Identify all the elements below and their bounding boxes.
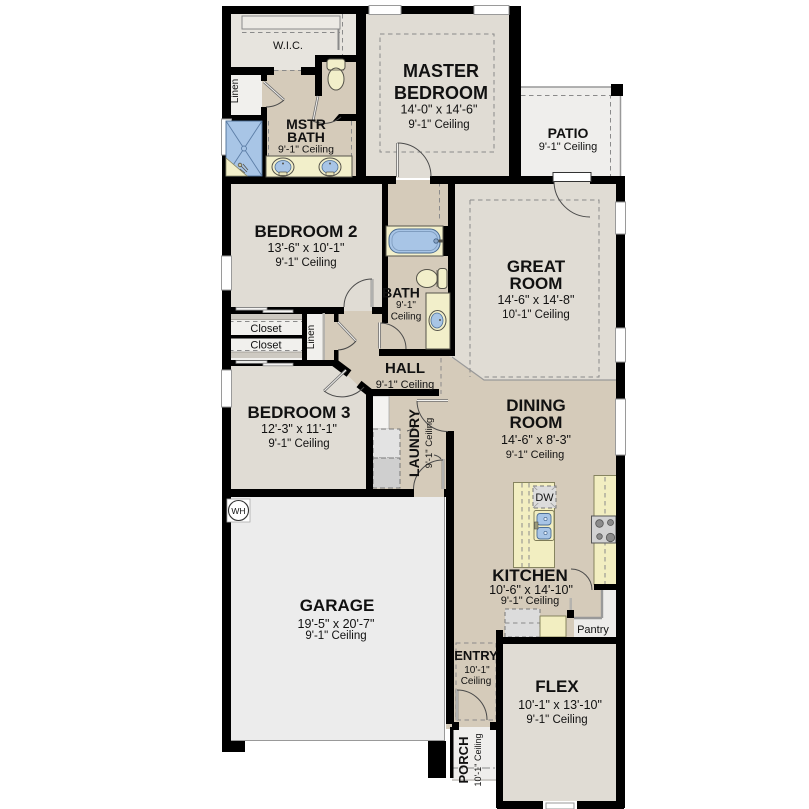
svg-text:ROOM: ROOM	[510, 413, 563, 432]
svg-text:BEDROOM: BEDROOM	[394, 83, 488, 103]
svg-text:LAUNDRY: LAUNDRY	[406, 408, 422, 477]
svg-text:10'-1": 10'-1"	[464, 665, 490, 676]
svg-text:9'-1" Ceiling: 9'-1" Ceiling	[268, 438, 329, 450]
svg-text:9'-1" Ceiling: 9'-1" Ceiling	[506, 449, 565, 461]
svg-text:ROOM: ROOM	[510, 274, 563, 293]
svg-text:Closet: Closet	[250, 323, 281, 335]
svg-text:PATIO: PATIO	[548, 125, 589, 141]
svg-text:12'-3" x 11'-1": 12'-3" x 11'-1"	[261, 422, 337, 436]
svg-text:19'-5" x 20'-7": 19'-5" x 20'-7"	[298, 617, 375, 631]
svg-text:9'-1" Ceiling: 9'-1" Ceiling	[526, 714, 587, 726]
svg-text:9'-1" Ceiling: 9'-1" Ceiling	[376, 379, 435, 391]
svg-text:9'-1" Ceiling: 9'-1" Ceiling	[408, 119, 469, 131]
svg-text:Pantry: Pantry	[577, 624, 609, 636]
svg-text:BEDROOM 2: BEDROOM 2	[255, 222, 358, 241]
svg-text:Linen: Linen	[306, 325, 317, 349]
svg-text:14'-6" x 8'-3": 14'-6" x 8'-3"	[501, 433, 571, 447]
svg-text:9'-1" Ceiling: 9'-1" Ceiling	[305, 630, 366, 642]
svg-text:9'-1" Ceiling: 9'-1" Ceiling	[278, 144, 334, 156]
svg-text:PORCH: PORCH	[456, 737, 471, 784]
svg-text:HALL: HALL	[385, 360, 425, 377]
svg-text:9'-1" Ceiling: 9'-1" Ceiling	[424, 418, 435, 469]
svg-text:9'-1" Ceiling: 9'-1" Ceiling	[501, 595, 560, 607]
svg-text:W.I.C.: W.I.C.	[273, 40, 303, 52]
svg-text:9'-1": 9'-1"	[396, 300, 416, 311]
svg-text:9'-1" Ceiling: 9'-1" Ceiling	[539, 141, 598, 153]
svg-text:GARAGE: GARAGE	[300, 596, 375, 615]
svg-text:ENTRY: ENTRY	[454, 648, 498, 663]
svg-text:MASTER: MASTER	[403, 61, 479, 81]
svg-text:BEDROOM 3: BEDROOM 3	[248, 403, 351, 422]
svg-text:13'-6" x 10'-1": 13'-6" x 10'-1"	[268, 241, 345, 255]
svg-text:9'-1" Ceiling: 9'-1" Ceiling	[275, 257, 336, 269]
svg-text:Ceiling: Ceiling	[461, 676, 492, 687]
svg-text:DW: DW	[535, 492, 554, 504]
svg-text:Linen: Linen	[230, 79, 241, 103]
svg-text:14'-0" x 14'-6": 14'-0" x 14'-6"	[401, 103, 478, 117]
svg-text:14'-6" x 14'-8": 14'-6" x 14'-8"	[498, 293, 575, 307]
svg-text:FLEX: FLEX	[535, 677, 579, 696]
svg-text:WH: WH	[231, 506, 245, 516]
svg-text:BATH: BATH	[382, 285, 420, 301]
svg-text:10'-1" x 13'-10": 10'-1" x 13'-10"	[518, 698, 602, 712]
svg-text:Ceiling: Ceiling	[391, 312, 422, 323]
svg-text:10'-1" Ceiling: 10'-1" Ceiling	[473, 734, 483, 787]
svg-text:Closet: Closet	[250, 340, 281, 352]
svg-text:10'-1" Ceiling: 10'-1" Ceiling	[502, 309, 570, 321]
